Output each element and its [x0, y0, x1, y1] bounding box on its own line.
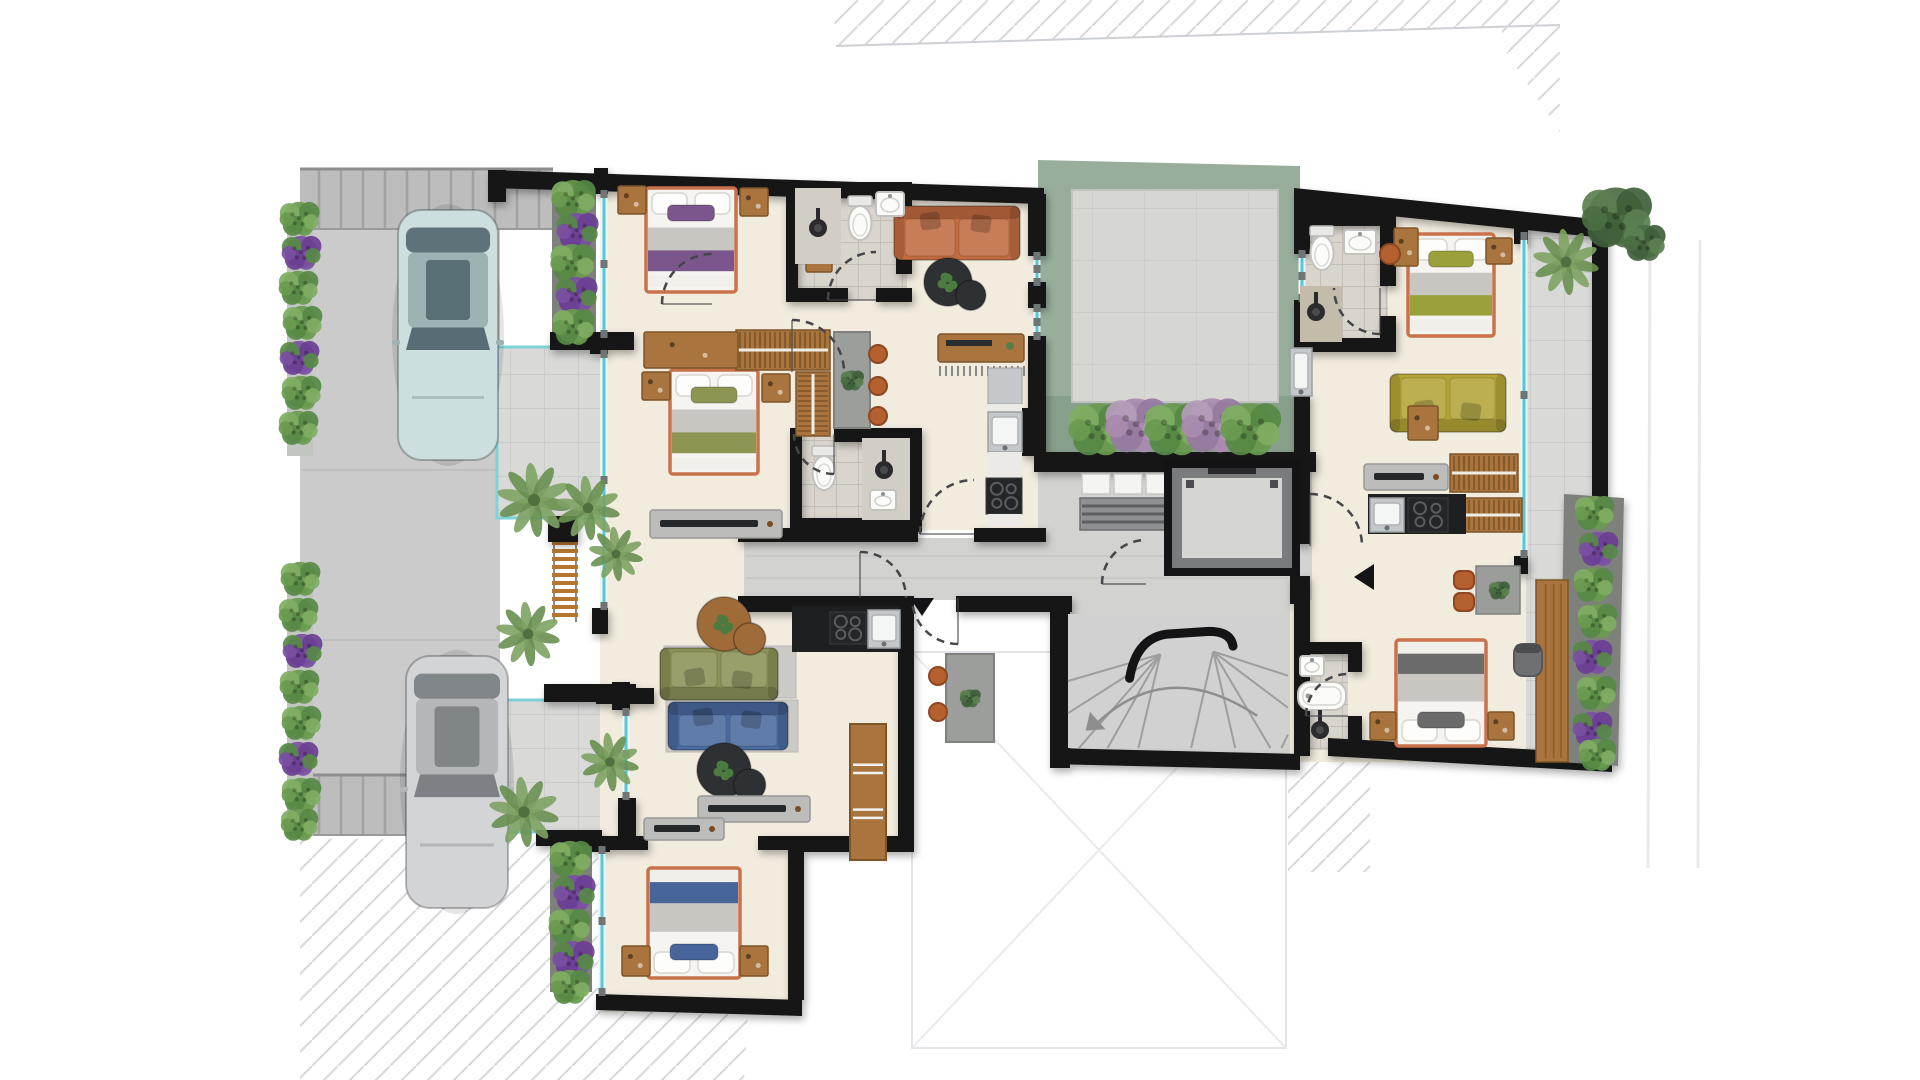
basin-east: [1344, 230, 1376, 254]
bed-olive: [1408, 234, 1494, 336]
cooktop-east: [1408, 498, 1448, 532]
bed-sw-right: [788, 848, 804, 1000]
neighbor-outline-1: [1648, 240, 1650, 868]
terrace-lower-topwall: [544, 684, 636, 702]
toilet-nw: [848, 196, 872, 240]
sideboard-mid: [644, 332, 738, 368]
bath-east-right-2: [1380, 316, 1396, 352]
wall-east-of-nw-1: [1028, 194, 1046, 256]
basin-nw: [876, 192, 904, 216]
bath-nw-bottom-2: [876, 288, 912, 302]
nightstand-9: [1488, 712, 1514, 740]
window-court-1: [1034, 252, 1041, 286]
counter-white-nw-3: [988, 514, 1022, 526]
stair-left-wall: [1050, 596, 1070, 768]
tub-se: [1298, 682, 1346, 710]
courtyard-slab-joints: [1072, 190, 1278, 402]
wardrobe-sw: [850, 724, 886, 860]
bed-purple: [646, 188, 736, 292]
car-silver: [400, 650, 514, 914]
floor-plan: [0, 0, 1920, 1080]
wall-top-left-stub: [488, 170, 506, 202]
sofa-green: [660, 648, 778, 700]
wall-corner-chunk: [1022, 408, 1046, 456]
plant: [281, 809, 318, 841]
cooktop-nw: [986, 478, 1022, 514]
winder-stair: [1068, 614, 1288, 748]
sink-sw: [868, 610, 900, 648]
vanity-chair: [1380, 244, 1400, 264]
side-table-east: [1408, 406, 1438, 440]
stool-sw-1: [929, 667, 947, 685]
tv-console-east: [1364, 464, 1448, 490]
elevator: [1164, 460, 1300, 576]
cooktop-sw: [830, 612, 866, 644]
corridor-planter-boxes: [1082, 474, 1174, 494]
basin-mid: [870, 490, 896, 510]
bed-gray: [1396, 640, 1486, 746]
terrace-steps-left: [552, 540, 578, 622]
tv-console-mid: [650, 510, 782, 538]
window-bed-sw-west: [599, 846, 606, 996]
dining-chair-2: [1454, 593, 1474, 611]
basin-se: [1300, 656, 1324, 676]
tv-console-sw-2: [644, 818, 724, 840]
closet-slats-east-2: [1460, 498, 1522, 532]
neighbor-outline-2: [1698, 240, 1700, 868]
counter-white-nw-2: [988, 452, 1022, 478]
closet-slats-east-1: [1450, 454, 1518, 492]
car-teal: [392, 204, 504, 466]
stool-mid-1: [869, 345, 887, 363]
wall-mid-left-stub: [592, 608, 608, 634]
bed-blue: [648, 868, 740, 978]
hatch-top-right: [1502, 0, 1560, 132]
sink-nw: [988, 412, 1022, 452]
hatch-bottom-right: [1288, 752, 1370, 872]
window-nw-west: [601, 190, 608, 338]
floor-plan-stage: [0, 0, 1920, 1080]
stool-mid-3: [869, 407, 887, 425]
sink-east: [1370, 498, 1404, 532]
wall-east-left-1: [1294, 206, 1310, 254]
nightstand-7: [1486, 238, 1512, 264]
dining-chair-1: [1454, 571, 1474, 589]
toilet-mid: [812, 446, 836, 490]
corridor-bench: [1080, 498, 1178, 530]
sink-east-wall: [1290, 348, 1312, 396]
plant: [1623, 225, 1665, 261]
stool-sw-2: [929, 703, 947, 721]
closet-slats-1: [736, 330, 830, 370]
toilet-east: [1310, 226, 1334, 270]
desk-chair-east: [1514, 644, 1542, 676]
hatch-top-band: [833, 0, 1560, 46]
window-court-2: [1034, 304, 1041, 340]
corridor-top-2: [974, 528, 1046, 542]
counter-steel-nw: [988, 368, 1022, 404]
bath-mid-right: [908, 430, 922, 532]
nightstand-8: [1370, 712, 1396, 740]
closet-slats-2: [796, 372, 830, 436]
bath-mid-left: [790, 428, 802, 532]
bath-se-right-1: [1348, 642, 1362, 672]
bed-green: [670, 370, 758, 474]
nightstand-6: [740, 946, 768, 976]
nightstand-5: [622, 946, 650, 976]
sofa-orange: [894, 206, 1020, 260]
palm: [495, 601, 560, 666]
nightstand-2: [740, 188, 768, 216]
stool-mid-2: [869, 377, 887, 395]
nightstand-1: [618, 186, 646, 214]
bath-se-top: [1294, 642, 1354, 654]
wall-east-left-3: [1294, 394, 1310, 454]
nightstand-4: [762, 374, 790, 402]
media-console-nw: [938, 334, 1024, 362]
counter-white-nw-1: [988, 404, 1022, 412]
nightstand-3: [642, 372, 670, 400]
